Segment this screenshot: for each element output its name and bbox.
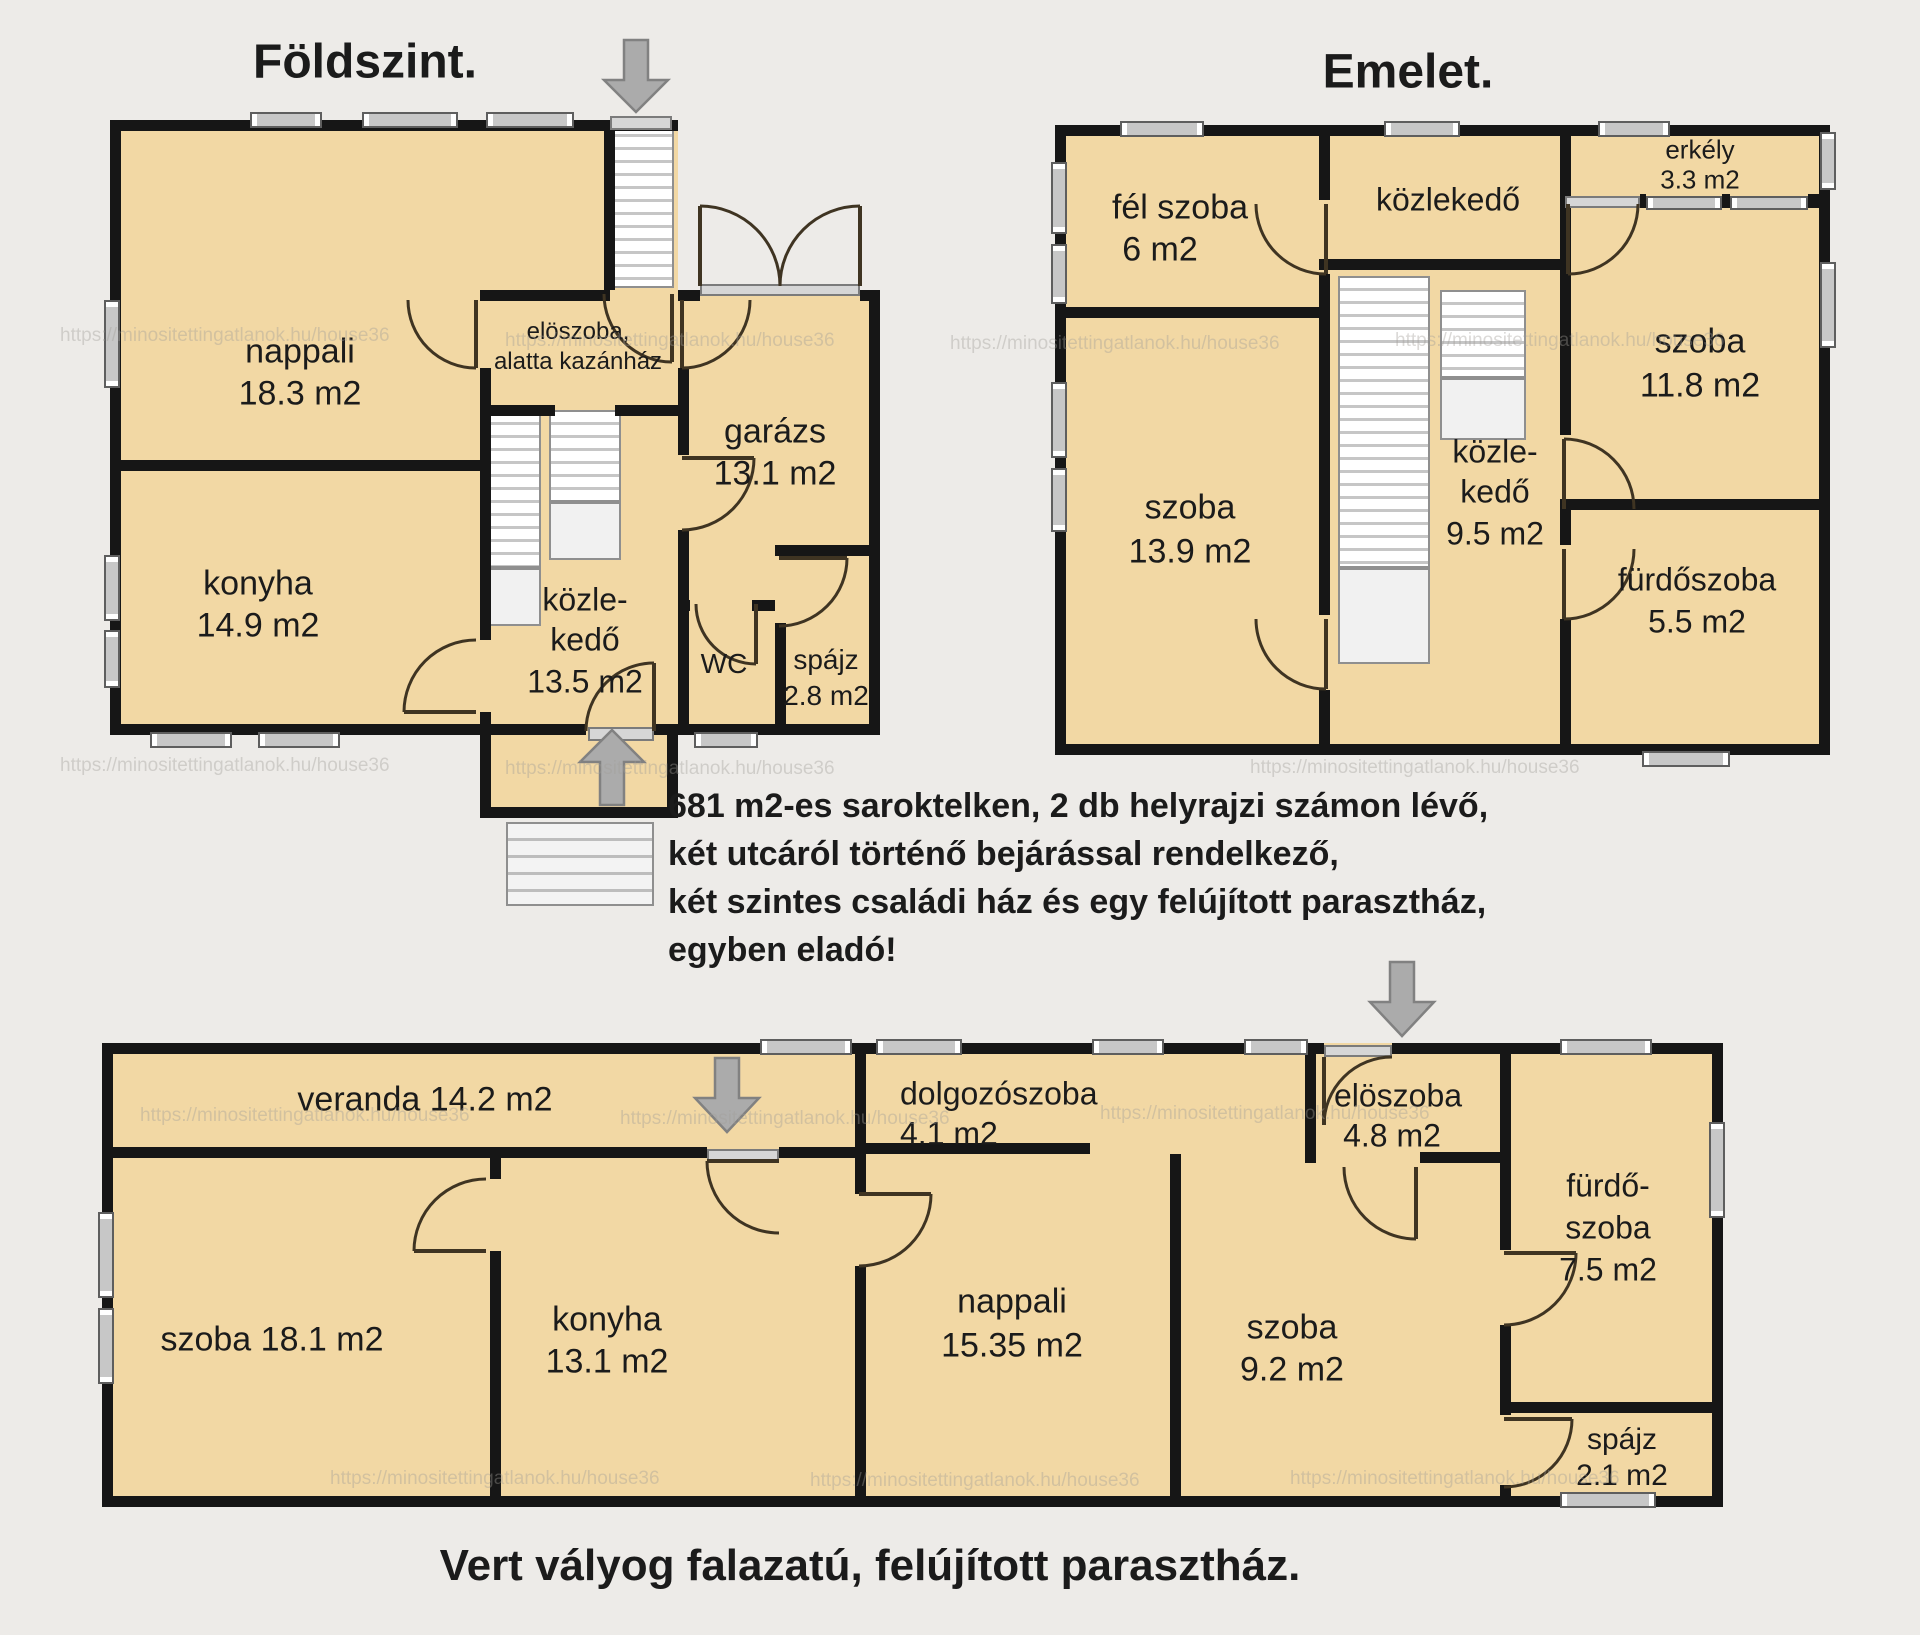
room-label-szoba-9-2: szoba (1247, 1309, 1338, 1348)
room-label-dolgozoszoba: dolgozószoba (900, 1076, 1097, 1113)
room-label-kozlekedo: közle- (542, 582, 627, 619)
watermark: https://minositettingatlanok.hu/house36 (1100, 1103, 1430, 1125)
door-arc (408, 300, 476, 368)
farmhouse-caption: Vert vályog falazatú, felújított paraszt… (440, 1541, 1301, 1591)
watermark: https://minositettingatlanok.hu/house36 (950, 333, 1280, 355)
description-line: 681 m2-es saroktelken, 2 db helyrajzi sz… (668, 782, 1488, 830)
room-area-szoba-11-8: 11.8 m2 (1640, 367, 1760, 406)
room-label-spajz-paraszthaz: spájz (1587, 1423, 1657, 1457)
door-arc (1256, 619, 1326, 689)
description-line: két szintes családi ház és egy felújítot… (668, 878, 1488, 926)
door-arc (859, 1194, 931, 1266)
watermark: https://minositettingatlanok.hu/house36 (330, 1468, 660, 1490)
door-arc (404, 640, 476, 712)
room-label-kozlekedo-kozep2: kedő (1460, 474, 1529, 511)
room-label-furdoszoba-paraszthaz: fürdő- (1566, 1168, 1650, 1205)
room-label-kozlekedo-felso: közlekedő (1376, 182, 1520, 219)
entry-arrow-down-icon (604, 40, 668, 112)
door-arc (780, 206, 860, 286)
room-area-spajz: 2.8 m2 (783, 680, 869, 712)
room-area-kozlekedo: 13.5 m2 (527, 664, 643, 701)
room-area-erkely: 3.3 m2 (1660, 165, 1740, 196)
floorplan-image: Földszint. Emelet. 681 m2-es saroktelken… (0, 0, 1920, 1635)
room-area-nappali: 18.3 m2 (239, 375, 362, 414)
room-area-fel-szoba: 6 m2 (1122, 231, 1198, 270)
watermark: https://minositettingatlanok.hu/house36 (505, 330, 835, 352)
description-line: egyben eladó! (668, 926, 1488, 974)
room-area-konyha: 14.9 m2 (197, 607, 320, 646)
door-arc (779, 558, 847, 626)
watermark: https://minositettingatlanok.hu/house36 (505, 758, 835, 780)
watermark: https://minositettingatlanok.hu/house36 (620, 1108, 950, 1130)
watermark: https://minositettingatlanok.hu/house36 (140, 1105, 470, 1127)
description-line: két utcáról történő bejárással rendelkez… (668, 830, 1488, 878)
room-area-nappali-paraszthaz: 15.35 m2 (941, 1327, 1083, 1366)
room-label-furdoszoba-emelet: fürdőszoba (1618, 562, 1776, 599)
watermark: https://minositettingatlanok.hu/house36 (810, 1470, 1140, 1492)
room-label-konyha: konyha (203, 565, 313, 604)
room-label-szoba-13-9: szoba (1145, 489, 1236, 528)
door-arc (700, 206, 780, 286)
room-label-kozlekedo-kozep: közle- (1452, 434, 1537, 471)
room-area-kozlekedo-kozep: 9.5 m2 (1446, 516, 1544, 553)
door-arc (414, 1179, 486, 1251)
room-area-furdoszoba-paraszthaz: 7.5 m2 (1559, 1252, 1657, 1289)
upper-floor-title: Emelet. (1323, 45, 1494, 100)
room-area-szoba-9-2: 9.2 m2 (1240, 1351, 1344, 1390)
room-area-konyha-paraszthaz: 13.1 m2 (546, 1343, 669, 1382)
room-label-wc: WC (701, 648, 748, 680)
ground-floor-title: Földszint. (253, 35, 477, 90)
room-area-furdoszoba-emelet: 5.5 m2 (1648, 604, 1746, 641)
door-arc (1564, 439, 1634, 509)
room-label-garazs: garázs (724, 413, 826, 452)
door-arc (707, 1161, 779, 1233)
room-label-eloszoba2: alatta kazánház (494, 348, 662, 376)
room-label-erkely: erkély (1665, 135, 1734, 166)
room-label-konyha-paraszthaz: konyha (552, 1301, 662, 1340)
room-area-garazs: 13.1 m2 (714, 455, 837, 494)
door-arc (1568, 204, 1638, 274)
room-label-nappali-paraszthaz: nappali (957, 1283, 1067, 1322)
watermark: https://minositettingatlanok.hu/house36 (60, 755, 390, 777)
listing-description: 681 m2-es saroktelken, 2 db helyrajzi sz… (668, 782, 1488, 974)
door-arc (1256, 204, 1326, 274)
room-label-kozlekedo2: kedő (550, 622, 619, 659)
watermark: https://minositettingatlanok.hu/house36 (1250, 757, 1580, 779)
room-label-fel-szoba: fél szoba (1112, 189, 1248, 228)
room-label-furdoszoba-paraszthaz2: szoba (1565, 1210, 1650, 1247)
room-area-szoba-13-9: 13.9 m2 (1129, 533, 1252, 572)
watermark: https://minositettingatlanok.hu/house36 (1395, 330, 1725, 352)
room-label-szoba-18-1: szoba 18.1 m2 (160, 1321, 383, 1360)
watermark: https://minositettingatlanok.hu/house36 (1290, 1468, 1620, 1490)
door-arc (1344, 1167, 1416, 1239)
room-label-spajz: spájz (793, 644, 858, 676)
watermark: https://minositettingatlanok.hu/house36 (60, 325, 390, 347)
